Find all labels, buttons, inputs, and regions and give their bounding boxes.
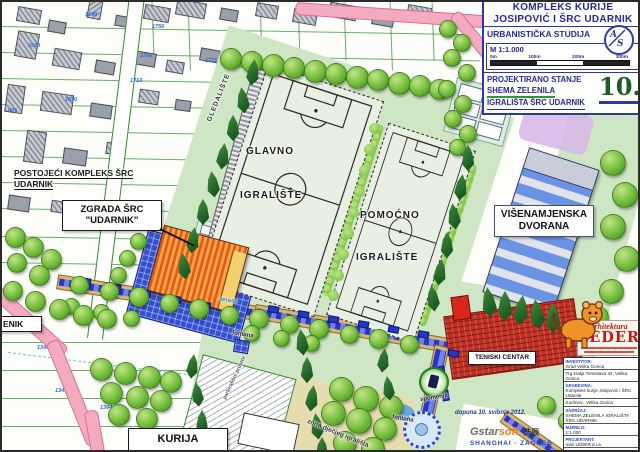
tree-deciduous (138, 366, 161, 389)
sheet-number-underline (599, 101, 639, 104)
studio-logo: A S (604, 25, 634, 55)
main-field-label-1: GLAVNO (246, 146, 294, 157)
scale-tick-0: 0m (490, 55, 497, 60)
cad-logo-cjk: 浩辰 (523, 428, 539, 437)
titleblock-table: INVESTITOR:Grad Velika GoricaTrg kralja … (563, 357, 640, 452)
parcel-number: 1690 (65, 97, 77, 103)
cadastral-building (7, 194, 31, 212)
tree-bush (369, 123, 380, 134)
tree-deciduous (537, 396, 556, 415)
tree-deciduous (70, 276, 89, 295)
tree-deciduous (3, 281, 23, 301)
cadastral-building (255, 2, 279, 20)
cadastral-building (94, 59, 116, 75)
tennis-clubhouse (450, 295, 471, 321)
logo-letter-s: S (617, 39, 624, 49)
tree-deciduous (49, 299, 70, 320)
tree-bush (359, 165, 370, 176)
scale-tick-300: 300m (616, 55, 628, 60)
scale-tick-200: 200m (572, 55, 584, 60)
tree-deciduous (367, 69, 389, 91)
tree-deciduous (325, 63, 347, 85)
tree-deciduous (340, 325, 359, 344)
sheet-number-value: 10. (599, 72, 640, 101)
scale-bar (490, 60, 630, 66)
cadastral-building (89, 103, 113, 120)
logo-letter-a: A (609, 30, 617, 40)
study-type-row: URBANISTIČKA STUDIJA A S (484, 27, 640, 42)
tree-deciduous (444, 110, 462, 128)
src-building-callout: ZGRADA ŠRC "UDARNIK" (62, 200, 162, 231)
cadastral-building (165, 60, 185, 75)
tree-deciduous (614, 246, 640, 272)
tree-deciduous (439, 20, 457, 38)
tree-deciduous (130, 233, 147, 250)
tree-deciduous (409, 75, 431, 97)
state-line3: IGRALIŠTA ŠRC UDARNIK (487, 98, 585, 110)
titleblock-row: GRAĐEVINA:Kompleks kurije Josipović i ŠR… (564, 382, 640, 399)
project-title-line1: KOMPLEKS KURIJE (486, 2, 640, 14)
state-row: PROJEKTIRANO STANJE SHEMA ZELENILA IGRAL… (484, 72, 640, 113)
existing-complex-line1: POSTOJEĆI KOMPLEKS ŠRC (14, 168, 133, 179)
title-panel: KOMPLEKS KURIJE JOSIPOVIĆ I ŠRC UDARNIK … (482, 0, 640, 115)
tree-deciduous (119, 250, 136, 267)
existing-complex-heading: POSTOJEĆI KOMPLEKS ŠRC UDARNIK (14, 168, 133, 190)
hall-callout-line1: VIŠENAMJENSKA (495, 209, 593, 221)
tree-bush (328, 290, 339, 301)
project-title-line2: JOSIPOVIĆ I ŠRC UDARNIK (486, 14, 640, 26)
cadastral-building (138, 89, 160, 106)
hall-callout-line2: DVORANA (495, 221, 593, 233)
titleblock-row: SADRŽAJ:SHEMA ZELENILA IGRALIŠTA ŠRC UDA… (564, 407, 640, 424)
tree-deciduous (600, 214, 626, 240)
tree-deciduous (600, 150, 626, 176)
state-line2: SHEMA ZELENILA (487, 86, 555, 99)
titleblock-row: Kurlovec, Velika Gorica (564, 399, 640, 407)
parcel-number: 1688 (28, 43, 40, 49)
sheet-number: 10. (599, 75, 639, 110)
cad-logo-orange: soft (499, 426, 519, 438)
titleblock-row: Trg kralja Tomislava 34, Velika Gorica (564, 370, 640, 382)
tree-deciduous (443, 49, 461, 67)
parcel-line (0, 78, 230, 83)
src-building-callout-line1: ZGRADA ŠRC (63, 204, 161, 215)
existing-complex-line2: UDARNIK (14, 179, 53, 190)
cadastral-building (174, 98, 191, 111)
tree-deciduous (388, 72, 411, 95)
site-plan-sheet: 1688169017131756176816981346134713646911… (0, 0, 640, 452)
tree-deciduous (7, 253, 27, 273)
tree-deciduous (29, 265, 50, 286)
tree-deciduous (100, 382, 123, 405)
titleblock-row: INVESTITOR:Grad Velika Gorica (564, 358, 640, 370)
cadastral-building (175, 0, 207, 19)
titleblock-row: MJERILO:1:1.000 (564, 424, 640, 436)
tree-deciduous (220, 48, 242, 70)
hall-callout: VIŠENAMJENSKA DVORANA (494, 205, 594, 237)
study-type-label: URBANISTIČKA STUDIJA (487, 29, 590, 39)
cadastral-building (16, 6, 42, 25)
cad-logo-gray: Gstar (470, 426, 499, 438)
monument-glyph (428, 374, 440, 389)
scale-tick-100: 100m (528, 55, 540, 60)
cad-vendor-logo: Gstarsoft 浩辰 SHANGHAI - ZAGREB (470, 422, 553, 447)
tree-deciduous (90, 358, 113, 381)
parcel-number: 1713 (130, 78, 142, 84)
tree-bush (364, 144, 375, 155)
cadastral-building (52, 48, 83, 71)
tree-deciduous (189, 299, 209, 319)
tree-deciduous (273, 330, 290, 347)
cadastral-building (23, 130, 47, 164)
leder-mascot (548, 292, 610, 352)
tree-deciduous (400, 335, 419, 354)
parcel-number: 1756 (152, 24, 164, 30)
tree-deciduous (160, 294, 179, 313)
cadastral-building (219, 8, 239, 23)
tree-deciduous (114, 362, 137, 385)
tree-deciduous (136, 408, 158, 430)
tree-bush (343, 228, 354, 239)
cadastral-building (47, 20, 67, 35)
tree-bush (354, 186, 365, 197)
tree-deciduous (126, 386, 149, 409)
tree-deciduous (438, 80, 456, 98)
tree-deciduous (23, 237, 44, 258)
tree-deciduous (346, 408, 372, 434)
tree-deciduous (97, 309, 117, 329)
tree-deciduous (458, 64, 476, 82)
main-field-label-2: IGRALIŠTE (240, 190, 302, 201)
aux-field-label-2: IGRALIŠTE (356, 252, 418, 263)
tree-deciduous (110, 267, 127, 284)
cadastral-building (143, 3, 171, 22)
titleblock-row: SURADNIK:Ivan LEDER d.i.a. (564, 448, 640, 452)
parcel-number: 1771 (205, 58, 217, 64)
tree-deciduous (283, 57, 305, 79)
tree-deciduous (262, 54, 285, 77)
parcel-number: 1698 (85, 12, 97, 18)
tennis-callout: TENISKI CENTAR (468, 351, 536, 365)
parcel-number: 1768 (140, 53, 152, 59)
tree-deciduous (449, 139, 466, 156)
tree-deciduous (369, 329, 389, 349)
cadastral-building (62, 147, 88, 166)
parcel-line (432, 0, 435, 60)
kurija-callout: KURIJA (128, 428, 228, 452)
tree-deciduous (123, 310, 140, 327)
parcel-number: 691 (8, 108, 17, 114)
revision-note: dopuna 10. svibnja 2012. (455, 410, 526, 416)
fountain-center (415, 423, 428, 436)
tree-deciduous (108, 404, 130, 426)
tree-deciduous (100, 282, 119, 301)
project-title: KOMPLEKS KURIJE JOSIPOVIĆ I ŠRC UDARNIK (484, 0, 640, 27)
cad-logo-subtitle: SHANGHAI - ZAGREB (470, 440, 553, 447)
tree-deciduous (129, 287, 149, 307)
tree-bush (348, 207, 359, 218)
tree-deciduous (25, 291, 46, 312)
tree-bush (333, 270, 344, 281)
tree-deciduous (304, 60, 327, 83)
tree-deciduous (329, 377, 354, 402)
tree-deciduous (612, 182, 638, 208)
tree-deciduous (150, 390, 172, 412)
state-line1: PROJEKTIRANO STANJE (487, 75, 599, 86)
tree-deciduous (321, 401, 346, 426)
cadastral-building (40, 91, 74, 115)
tree-bush (338, 249, 349, 260)
tree-deciduous (346, 66, 369, 89)
titleblock-row: PROJEKTANT:Ivan LEDER d.i.a. (564, 436, 640, 448)
tree-deciduous (73, 305, 94, 326)
src-building-callout-line2: "UDARNIK" (63, 215, 161, 226)
tree-deciduous (220, 306, 239, 325)
aux-field-label-1: POMOĆNO (360, 210, 420, 221)
street-stub-callout: ENIK (0, 316, 42, 332)
